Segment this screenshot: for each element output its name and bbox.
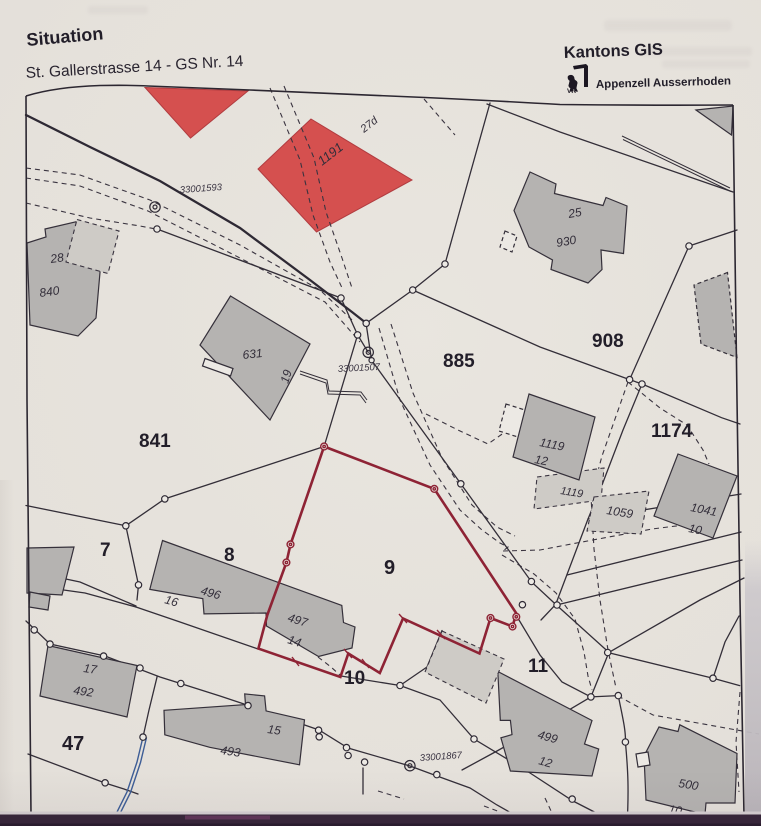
svg-text:7: 7 — [100, 540, 111, 561]
svg-text:841: 841 — [139, 431, 171, 452]
svg-text:8: 8 — [224, 545, 235, 566]
svg-text:885: 885 — [443, 351, 475, 372]
svg-text:493: 493 — [220, 743, 242, 760]
svg-text:9: 9 — [384, 557, 395, 579]
svg-text:15: 15 — [267, 722, 282, 738]
svg-text:Kantons GIS: Kantons GIS — [564, 41, 664, 62]
svg-text:28: 28 — [48, 250, 64, 266]
svg-text:25: 25 — [566, 205, 583, 221]
svg-text:492: 492 — [73, 683, 95, 700]
svg-text:10: 10 — [344, 668, 365, 689]
svg-text:908: 908 — [592, 331, 624, 352]
svg-text:840: 840 — [38, 283, 60, 300]
svg-text:47: 47 — [62, 733, 84, 755]
svg-text:VR: VR — [567, 88, 576, 95]
svg-text:33001507: 33001507 — [338, 362, 382, 375]
svg-text:1174: 1174 — [651, 421, 693, 442]
svg-text:11: 11 — [528, 656, 549, 677]
svg-text:631: 631 — [242, 346, 263, 362]
